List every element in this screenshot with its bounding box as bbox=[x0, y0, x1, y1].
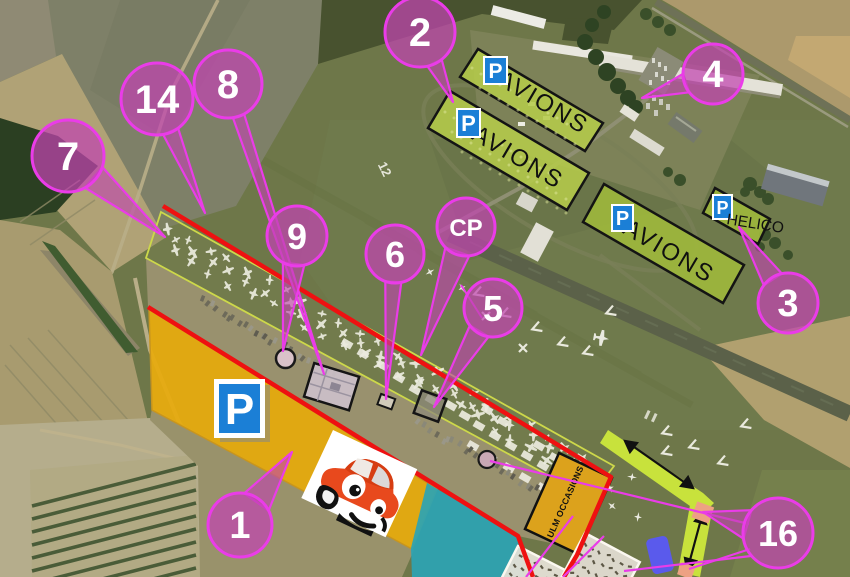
svg-text:9: 9 bbox=[287, 216, 307, 257]
svg-text:6: 6 bbox=[385, 234, 405, 275]
svg-text:P: P bbox=[616, 208, 629, 230]
svg-text:14: 14 bbox=[135, 78, 180, 122]
svg-text:3: 3 bbox=[777, 283, 798, 325]
svg-text:P: P bbox=[461, 111, 476, 136]
svg-text:5: 5 bbox=[483, 288, 503, 329]
svg-text:P: P bbox=[225, 385, 254, 434]
svg-text:2: 2 bbox=[409, 11, 431, 55]
svg-text:8: 8 bbox=[217, 63, 239, 107]
svg-text:1: 1 bbox=[229, 505, 250, 547]
svg-text:4: 4 bbox=[702, 54, 723, 96]
svg-text:16: 16 bbox=[758, 513, 798, 554]
svg-text:P: P bbox=[488, 60, 502, 83]
svg-text:7: 7 bbox=[57, 135, 79, 179]
svg-text:CP: CP bbox=[449, 215, 482, 242]
